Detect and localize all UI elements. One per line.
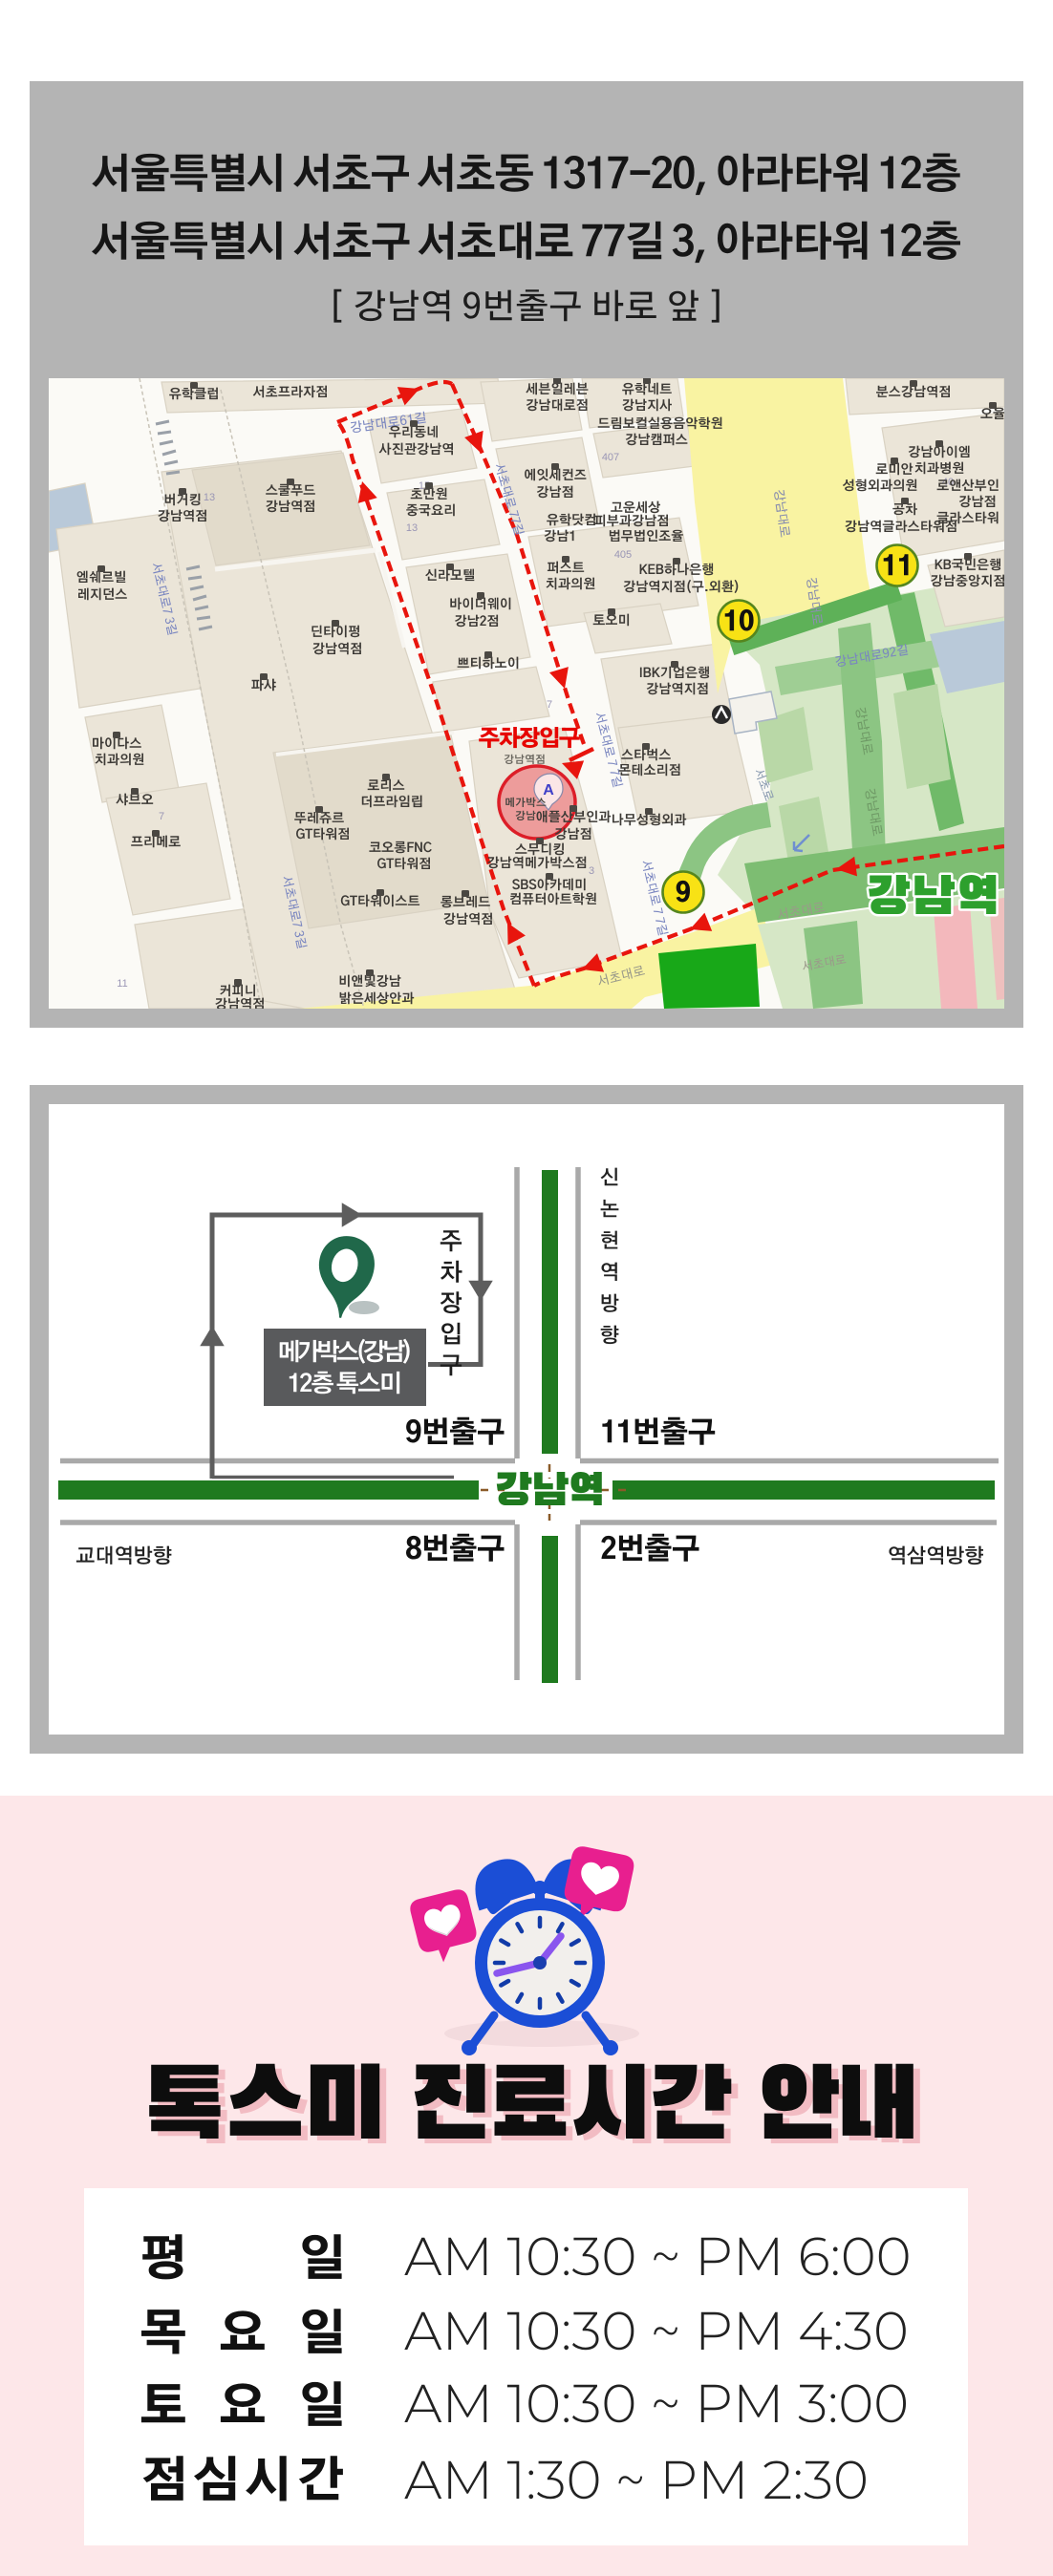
svg-text:13: 13: [204, 492, 215, 503]
svg-text:407: 407: [602, 452, 619, 463]
svg-text:7: 7: [159, 811, 164, 822]
svg-text:11: 11: [117, 978, 127, 990]
svg-text:13: 13: [406, 522, 418, 534]
svg-text:7: 7: [547, 699, 552, 711]
svg-text:3: 3: [589, 865, 594, 877]
svg-text:A: A: [543, 782, 554, 798]
svg-text:405: 405: [614, 549, 632, 561]
